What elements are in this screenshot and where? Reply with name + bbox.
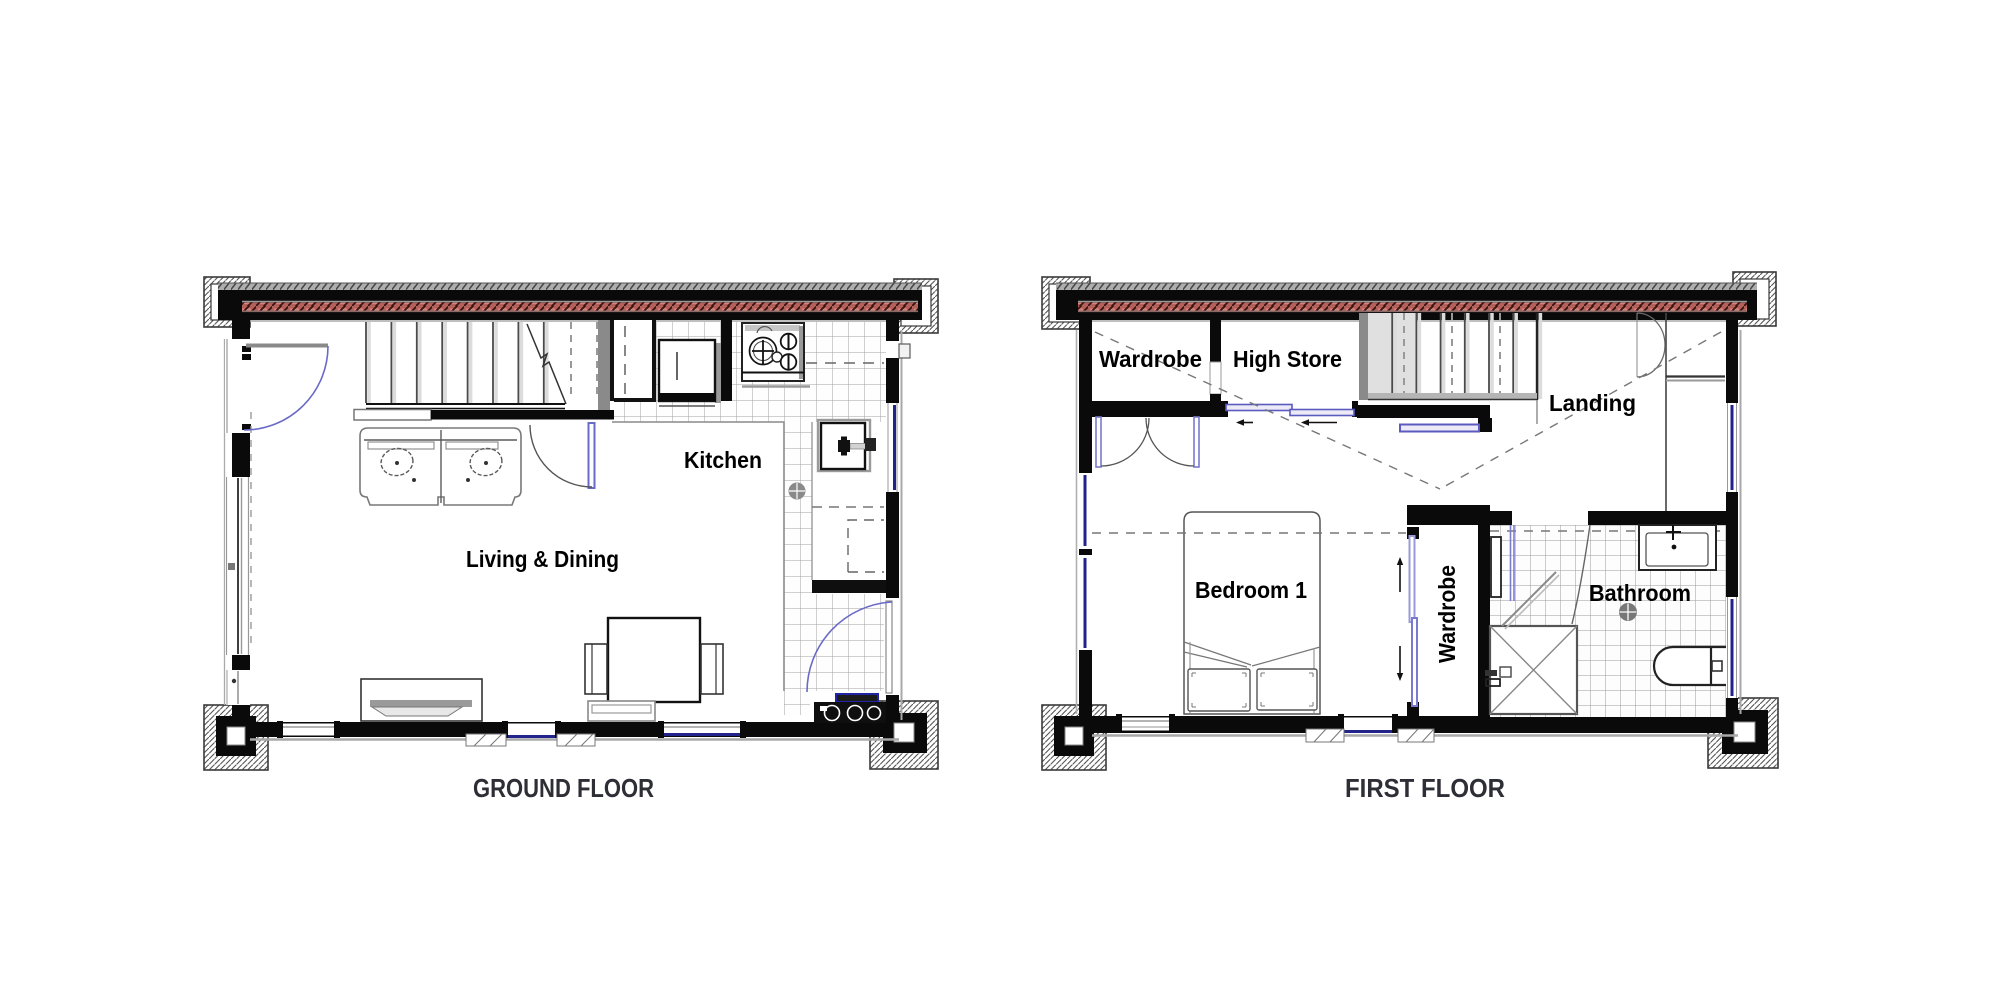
svg-text:Landing: Landing (1549, 390, 1636, 416)
svg-text:Wardrobe: Wardrobe (1099, 346, 1202, 372)
svg-text:Kitchen: Kitchen (684, 447, 762, 473)
svg-text:Wardrobe: Wardrobe (1434, 565, 1460, 663)
svg-text:Living & Dining: Living & Dining (466, 546, 619, 572)
svg-text:High Store: High Store (1233, 346, 1342, 372)
svg-text:GROUND FLOOR: GROUND FLOOR (473, 773, 654, 803)
svg-text:FIRST FLOOR: FIRST FLOOR (1345, 773, 1505, 803)
svg-text:Bathroom: Bathroom (1589, 580, 1691, 606)
svg-text:Bedroom 1: Bedroom 1 (1195, 577, 1307, 603)
